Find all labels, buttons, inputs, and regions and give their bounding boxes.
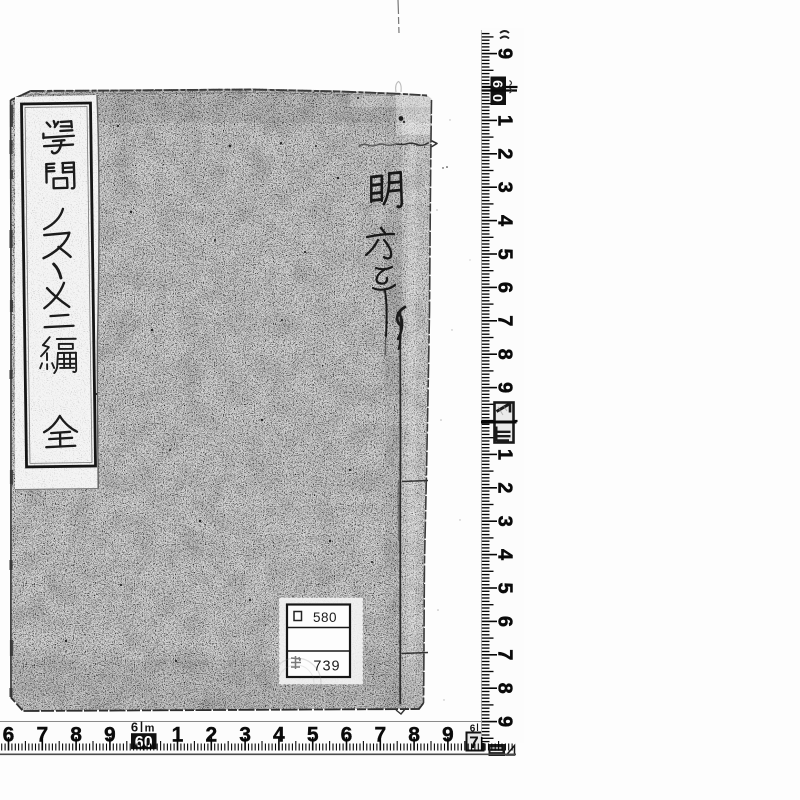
svg-text:6: 6 [494, 616, 516, 627]
svg-text:3: 3 [494, 182, 516, 193]
svg-text:7: 7 [494, 649, 516, 660]
svg-text:1: 1 [494, 115, 516, 126]
svg-text:6: 6 [494, 282, 516, 293]
svg-text:739: 739 [313, 659, 340, 675]
svg-text:5: 5 [494, 582, 516, 593]
svg-text:8: 8 [494, 349, 516, 360]
svg-text:6: 6 [470, 724, 476, 735]
svg-text:3: 3 [494, 516, 516, 527]
svg-text:6: 6 [131, 720, 138, 735]
svg-text:7: 7 [494, 315, 516, 326]
svg-text:6: 6 [490, 80, 506, 88]
svg-text:4: 4 [494, 215, 516, 227]
svg-text:m: m [145, 723, 155, 735]
svg-text:9: 9 [494, 48, 516, 59]
svg-text:4: 4 [494, 549, 516, 561]
svg-text:7: 7 [469, 733, 478, 752]
svg-text:580: 580 [313, 610, 337, 625]
svg-text:9: 9 [494, 382, 516, 393]
svg-text:5: 5 [494, 248, 516, 259]
svg-text:8: 8 [494, 683, 516, 694]
svg-text:2: 2 [494, 482, 516, 493]
svg-text:1: 1 [494, 449, 516, 460]
svg-text:0: 0 [490, 94, 506, 102]
svg-text:2: 2 [494, 148, 516, 159]
svg-text:9: 9 [494, 716, 516, 727]
